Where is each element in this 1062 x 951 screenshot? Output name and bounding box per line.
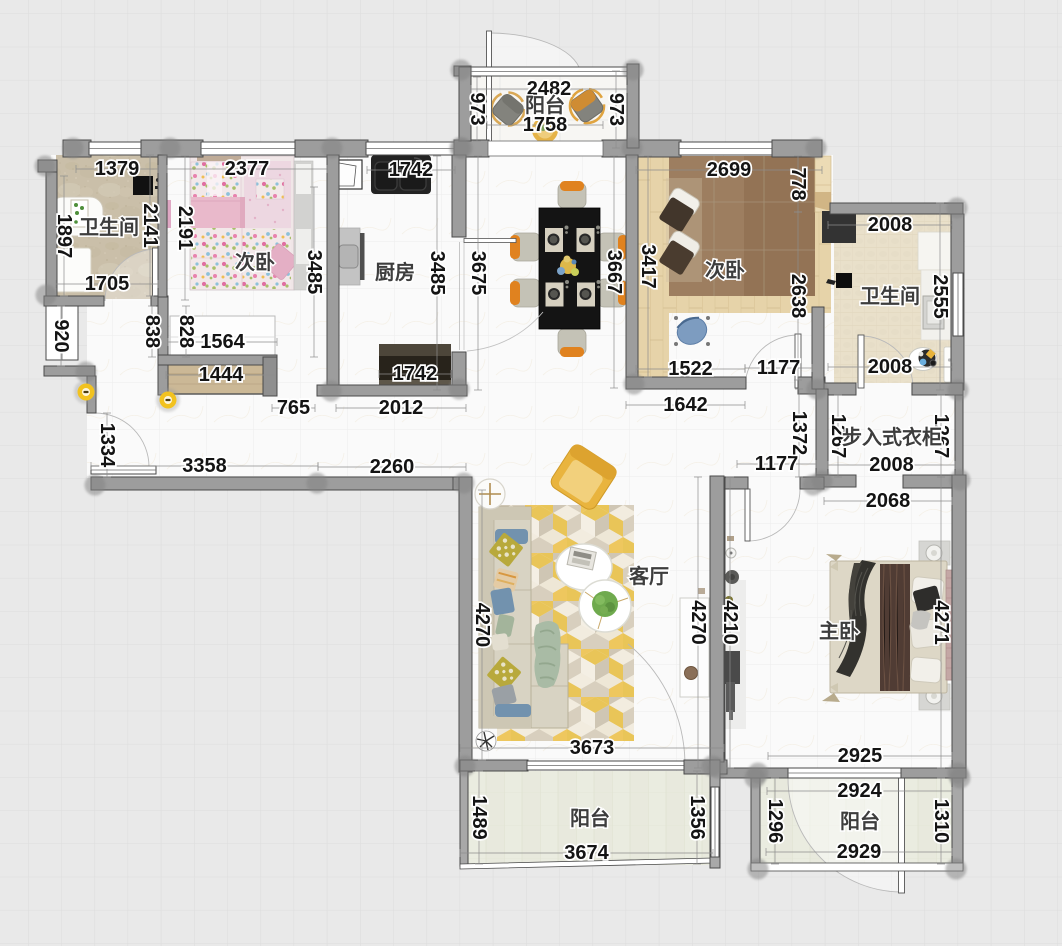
svg-text:阳台: 阳台 xyxy=(570,806,610,830)
svg-text:828: 828 xyxy=(175,315,197,348)
svg-text:3673: 3673 xyxy=(570,737,615,759)
svg-text:2555: 2555 xyxy=(929,274,951,319)
svg-text:2924: 2924 xyxy=(837,780,882,802)
svg-text:2008: 2008 xyxy=(868,214,913,236)
svg-text:3667: 3667 xyxy=(603,250,625,295)
svg-text:1489: 1489 xyxy=(468,795,490,840)
svg-text:1742: 1742 xyxy=(393,363,438,385)
svg-text:3674: 3674 xyxy=(564,842,609,864)
svg-text:2141: 2141 xyxy=(139,203,161,248)
svg-text:步入式衣柜: 步入式衣柜 xyxy=(842,425,942,449)
svg-text:3675: 3675 xyxy=(467,251,489,296)
svg-text:4271: 4271 xyxy=(930,600,952,645)
svg-text:765: 765 xyxy=(277,397,310,419)
svg-text:2699: 2699 xyxy=(707,159,752,181)
svg-text:2638: 2638 xyxy=(787,274,809,319)
svg-text:阳台: 阳台 xyxy=(525,93,565,117)
svg-text:2008: 2008 xyxy=(869,454,914,476)
svg-text:1758: 1758 xyxy=(523,114,568,136)
svg-text:838: 838 xyxy=(141,315,163,348)
svg-text:2377: 2377 xyxy=(225,158,270,180)
svg-text:2929: 2929 xyxy=(837,841,882,863)
svg-text:778: 778 xyxy=(787,167,809,200)
svg-text:阳台: 阳台 xyxy=(840,809,880,833)
svg-text:3485: 3485 xyxy=(303,250,325,295)
svg-text:客厅: 客厅 xyxy=(628,564,669,588)
svg-text:1564: 1564 xyxy=(200,331,245,353)
svg-text:厨房: 厨房 xyxy=(375,260,415,284)
svg-text:2068: 2068 xyxy=(866,490,911,512)
svg-text:1522: 1522 xyxy=(668,358,713,380)
svg-text:2012: 2012 xyxy=(379,397,424,419)
svg-text:1444: 1444 xyxy=(199,364,244,386)
svg-text:3358: 3358 xyxy=(182,455,227,477)
svg-text:973: 973 xyxy=(466,92,488,125)
svg-text:主卧: 主卧 xyxy=(819,619,859,643)
svg-text:2925: 2925 xyxy=(838,745,883,767)
svg-text:1296: 1296 xyxy=(764,799,786,844)
svg-text:3485: 3485 xyxy=(426,251,448,296)
svg-text:1334: 1334 xyxy=(96,423,118,468)
svg-text:4270: 4270 xyxy=(687,600,709,645)
svg-text:卫生间: 卫生间 xyxy=(79,216,139,239)
svg-text:2260: 2260 xyxy=(370,456,415,478)
svg-text:1177: 1177 xyxy=(755,453,798,475)
svg-text:卫生间: 卫生间 xyxy=(860,285,920,308)
svg-text:2191: 2191 xyxy=(174,206,196,251)
svg-text:1177: 1177 xyxy=(757,357,800,379)
svg-text:4210: 4210 xyxy=(719,600,741,645)
svg-text:920: 920 xyxy=(50,319,72,352)
svg-text:2008: 2008 xyxy=(868,356,913,378)
svg-text:1356: 1356 xyxy=(686,795,708,840)
svg-text:次卧: 次卧 xyxy=(235,250,275,274)
svg-text:1742: 1742 xyxy=(389,159,434,181)
svg-text:次卧: 次卧 xyxy=(705,258,745,282)
svg-text:1310: 1310 xyxy=(930,799,952,844)
svg-text:1705: 1705 xyxy=(85,273,130,295)
svg-text:1372: 1372 xyxy=(788,411,810,456)
svg-text:3417: 3417 xyxy=(637,244,659,289)
svg-text:1897: 1897 xyxy=(53,214,75,259)
svg-text:973: 973 xyxy=(605,93,627,126)
svg-text:1379: 1379 xyxy=(95,158,140,180)
svg-text:1642: 1642 xyxy=(663,394,708,416)
svg-text:4270: 4270 xyxy=(471,603,493,648)
